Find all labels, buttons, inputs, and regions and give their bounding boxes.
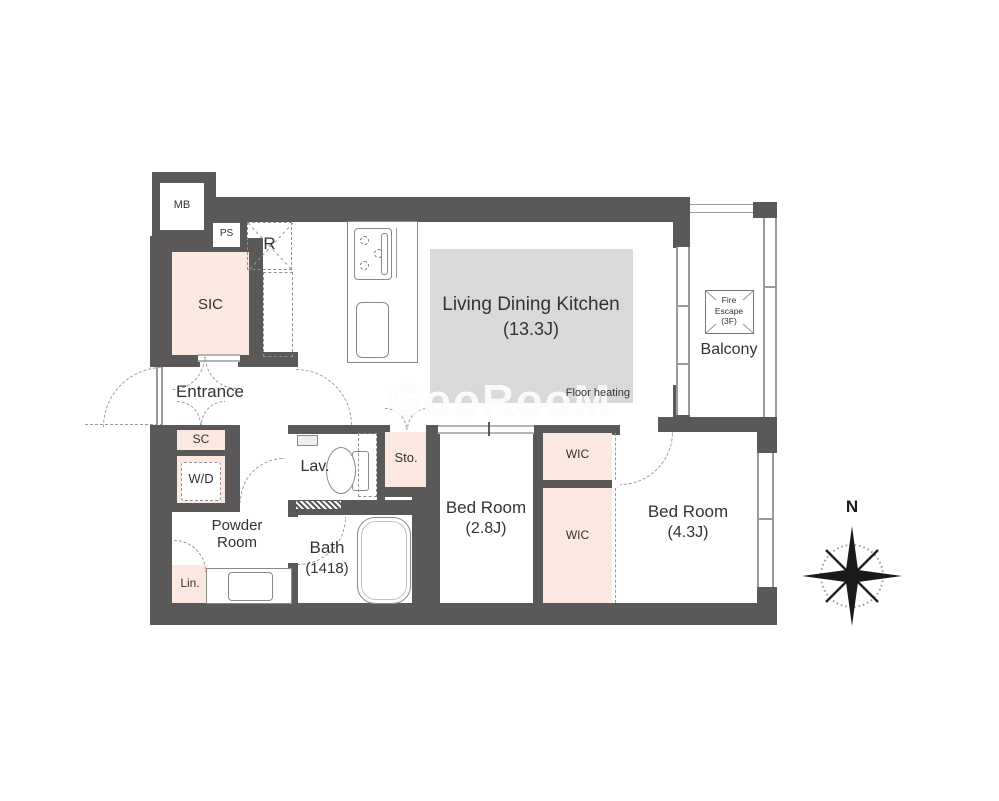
- wic1-folding-door: [615, 433, 616, 480]
- bedroom2-label: Bed Room (4.3J): [628, 502, 748, 542]
- kitchen-sink: [356, 302, 389, 358]
- balcony-label: Balcony: [691, 341, 767, 359]
- balcony-rail-right: [763, 218, 777, 417]
- sliding-door-tick: [488, 422, 490, 436]
- ps-label: PS: [212, 228, 241, 240]
- wall-segment: [757, 432, 777, 453]
- bedroom2-size: (4.3J): [628, 524, 748, 542]
- wall-segment: [172, 503, 228, 512]
- ldk-size: (13.3J): [418, 319, 644, 340]
- glass-door-tick: [676, 305, 690, 307]
- powder-room-door-swing-arc: [240, 458, 284, 502]
- sto-door-swing-arc: [407, 408, 428, 429]
- refrigerator-label: R: [247, 234, 292, 254]
- wall-segment: [757, 587, 777, 610]
- wall-segment: [533, 480, 612, 488]
- bedroom1-sliding-door: [438, 425, 534, 434]
- bedroom2-name: Bed Room: [628, 502, 748, 522]
- fire-escape-line2: Escape: [715, 306, 743, 316]
- compass-rose: N: [792, 496, 912, 628]
- wd-label: W/D: [177, 472, 225, 487]
- counter-divider-line: [396, 228, 397, 278]
- sc-door-swing-arc: [201, 401, 225, 425]
- mb-label: MB: [158, 199, 206, 212]
- room-wic-bottom: [543, 488, 612, 603]
- refrigerator-space-lower: [263, 272, 293, 357]
- wall-segment: [150, 603, 777, 625]
- fire-escape-label: Fire Escape (3F): [706, 295, 752, 327]
- powder-room-line1: Powder: [198, 517, 276, 534]
- vanity-sink: [228, 572, 273, 601]
- front-door-swing-arc: [103, 367, 163, 427]
- wall-segment: [673, 218, 690, 248]
- bathtub-inner: [361, 521, 407, 600]
- sc-label: SC: [177, 433, 225, 447]
- bath-label: Bath (1418): [294, 538, 360, 577]
- bedroom2-door-swing-arc: [620, 432, 673, 485]
- balcony-rail-top: [690, 204, 753, 213]
- wic2-folding-door: [615, 488, 616, 603]
- ldk-label: Living Dining Kitchen (13.3J): [418, 294, 644, 340]
- wall-segment: [150, 236, 172, 367]
- wall-segment: [225, 425, 240, 512]
- powder-room-line2: Room: [198, 534, 276, 551]
- threshold-hatch: [296, 501, 341, 509]
- sc-door-swing-arc: [177, 401, 201, 425]
- glass-door-tick: [676, 363, 690, 365]
- lav-label: Lav.: [294, 458, 336, 476]
- wic2-label: WIC: [543, 529, 612, 543]
- front-door-chord: [85, 424, 163, 425]
- wall-segment: [753, 202, 777, 218]
- powder-room-label: Powder Room: [198, 517, 276, 552]
- fire-escape-line3: (3F): [721, 316, 737, 326]
- balcony-glass-door: [676, 247, 690, 415]
- lav-counter: [297, 435, 318, 446]
- toilet-partition: [358, 433, 377, 497]
- wall-segment: [533, 425, 543, 485]
- window-tick: [757, 518, 774, 520]
- compass-north-label: N: [846, 497, 858, 516]
- bedroom1-label: Bed Room (2.8J): [433, 498, 539, 538]
- floor-heating-label: Floor heating: [530, 387, 630, 400]
- wall-segment: [163, 425, 177, 512]
- bath-name: Bath: [294, 538, 360, 558]
- fire-escape-hatch: Fire Escape (3F): [705, 290, 754, 334]
- stove-burner-icon: [360, 236, 369, 245]
- sic-label: SIC: [172, 296, 249, 313]
- sto-door-swing-arc: [385, 408, 407, 430]
- rail-tick: [763, 286, 777, 288]
- bedroom1-size: (2.8J): [433, 520, 539, 538]
- ldk-name: Living Dining Kitchen: [418, 294, 644, 316]
- entrance-label: Entrance: [166, 382, 254, 402]
- stove-grill: [381, 233, 388, 275]
- floor-plan: Fire Escape (3F) MB PS R SIC Entrance SC…: [0, 0, 999, 801]
- wic1-label: WIC: [543, 448, 612, 462]
- fire-escape-line1: Fire: [722, 295, 737, 305]
- bedroom2-window: [757, 453, 774, 587]
- wall-segment: [205, 197, 690, 222]
- bedroom1-name: Bed Room: [433, 498, 539, 518]
- bath-size: (1418): [294, 560, 360, 577]
- stove-burner-icon: [360, 261, 369, 270]
- lin-label: Lin.: [173, 577, 207, 591]
- ldk-door-swing-arc: [296, 369, 352, 425]
- sto-label: Sto.: [388, 451, 424, 466]
